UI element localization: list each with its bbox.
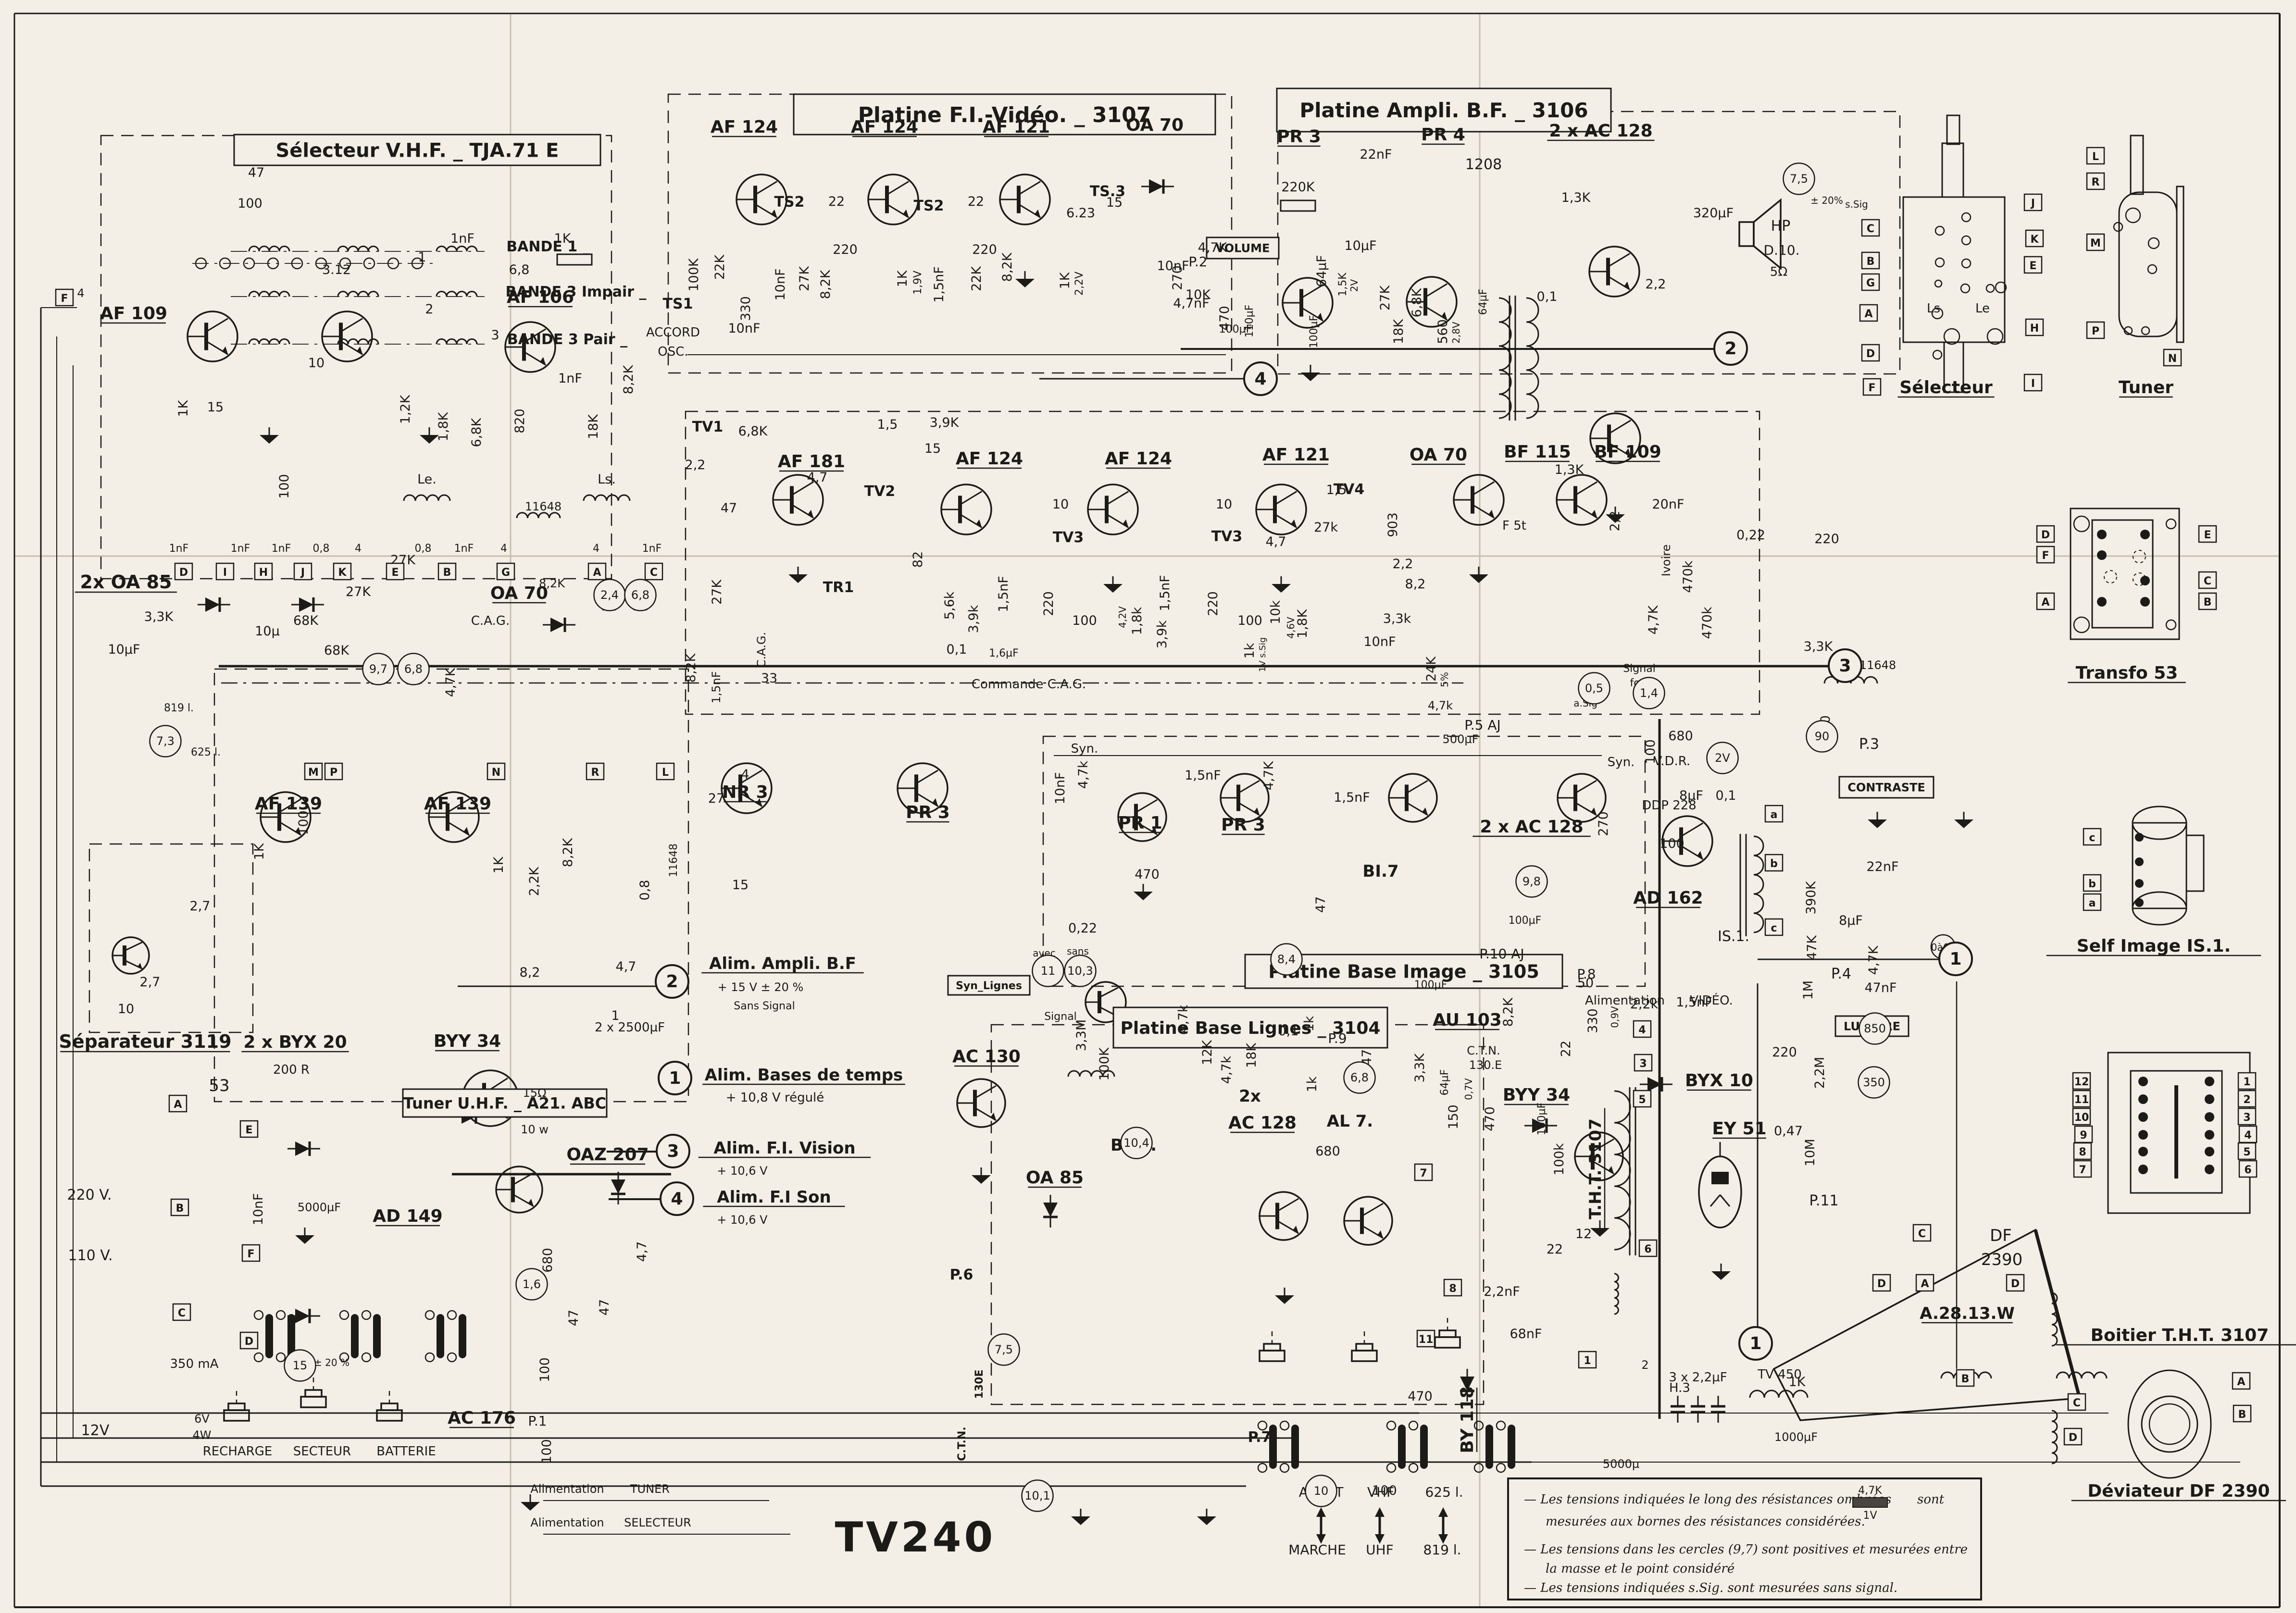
value-label: 15Ω [523,1086,547,1100]
value-label: SECTEUR [293,1444,351,1459]
value-label: 4,7k [1219,1055,1234,1084]
component-label: TV2 [864,483,896,500]
circled-voltage: 9,8 [1522,875,1541,888]
value-label: 47K [1805,935,1820,960]
figure-boitier-lug [2138,1077,2148,1086]
value-label: 10 [1216,497,1232,512]
circled-voltage: 11 [1041,964,1056,978]
value-label: 3,9k [1155,620,1170,648]
circled-voltage: 7,5 [1790,172,1808,186]
value-label: 1K [1058,272,1073,289]
value-label: 680 [1315,1144,1340,1159]
value-label: 625 l. [1425,1484,1463,1500]
value-label: 4,7K [1646,605,1661,634]
component-label: BI.7 [1362,862,1398,881]
value-label: 1,5nF [932,266,947,303]
value-label: 0,7V [1463,1078,1474,1100]
figure-self-lug [2135,833,2144,842]
value-label: 11648 [525,500,562,513]
value-label: 320µF [1693,206,1734,221]
value-label: 47 [566,1310,581,1326]
pin-label: H [2030,323,2039,335]
pin-label: P [330,767,337,779]
value-label: 0,47 [1774,1124,1803,1139]
pin-label: 6 [1644,1243,1651,1255]
value-label: 27k [1314,520,1338,535]
switch-blade [351,1314,359,1358]
value-label: 2,2k [1630,997,1659,1012]
value-label: 3,3K [1804,639,1834,654]
pin-label: 5 [2243,1146,2250,1158]
value-label: P.11 [1809,1192,1838,1209]
page-title: TV240 [835,1514,996,1562]
circled-voltage: 1,6 [523,1278,541,1291]
value-label: 819 l. [164,702,194,714]
pin-label: b [2088,878,2096,890]
value-label: 1M [1801,980,1816,1000]
value-label: 1K [895,270,910,287]
value-label: 0,22 [1736,528,1765,543]
value-label: 47nF [1865,980,1897,995]
component-label: 2 x BYX 20 [243,1032,347,1052]
component-label: AF 121 [983,117,1050,137]
value-label: 0,1 [1278,1024,1299,1039]
value-label: 220 V. [67,1187,112,1204]
pin-label: A [174,1099,182,1111]
value-label: 1,5nF [1158,575,1173,611]
value-label: 110 V. [68,1247,113,1264]
pin-label: 6 [2244,1164,2251,1176]
value-label: Syn. [1071,742,1098,756]
value-label: 1nF [642,543,662,555]
component-label: OAZ 207 [566,1145,649,1165]
value-label: 8,2K [1501,997,1516,1027]
component-label: BYY 34 [434,1031,501,1051]
component-label: PR 3 [1277,127,1321,147]
value-label: Sans Signal [734,1000,795,1012]
component-label: BF 115 [1504,442,1571,462]
pin-label: a [1771,809,1778,821]
value-label: 4,6V [1285,617,1297,639]
component-label: AF 124 [711,117,778,137]
value-label: TV 450 [1757,1367,1802,1382]
value-label: 22 [828,194,845,209]
value-label: 3,9K [930,415,960,430]
pin-label: 2 [2243,1094,2250,1106]
value-label: UHF [1366,1542,1394,1558]
value-label: ACCORD [646,325,700,340]
value-label: 1,5nF [996,576,1011,612]
component-label: PR 3 [906,803,950,822]
value-label: 0,8 [415,543,432,555]
note-resistor-symbol [1853,1498,1887,1507]
value-label: 10nF [1053,772,1068,805]
value-label: 470 [1483,1106,1497,1131]
value-label: 3,3K [144,609,174,624]
value-label: 6V [194,1412,210,1426]
value-label: 820 [512,409,527,434]
value-label: D.10. [1764,242,1800,258]
component-label: T.H.T. 3107 [1586,1118,1605,1219]
value-label: 1,8k [1130,607,1145,635]
value-label: RECHARGE [203,1444,273,1459]
value-label: 1,5 [877,417,898,432]
pin-label: D [2011,1278,2020,1290]
note-resistor-voltage: 1V [1863,1510,1877,1522]
figure-transfo-lug [2097,530,2107,539]
pin-label: E [391,567,399,579]
value-label: 100 [539,1439,554,1464]
component-label: Sélecteur [1899,378,1993,397]
pin-label: E [245,1124,252,1136]
value-label: 4,7K [1866,945,1881,975]
value-label: 33 [761,671,777,686]
component-label: BYX 10 [1685,1071,1753,1091]
pin-label: 8 [1449,1283,1456,1295]
value-label: 0,22 [1068,921,1097,936]
pin-label: a [2089,897,2096,909]
pin-label: 3 [1639,1058,1647,1070]
pin-label: B [1961,1373,1970,1385]
value-label: 11648 [668,844,680,877]
value-label: 200 R [273,1063,310,1077]
circled-voltage: 6,8 [631,588,649,602]
value-label: + 15 V ± 20 % [718,980,804,994]
component-label: AL 7. [1327,1112,1373,1131]
value-label: 2,2 [685,458,706,472]
value-label: 22 [1547,1242,1563,1257]
value-label: 1K [252,843,267,860]
value-label: 4 [500,543,507,555]
schematic-page: Sélecteur V.H.F. _ TJA.71 EPlatine F.I.-… [0,0,2296,1613]
component-label: PR 1 [1118,813,1162,833]
value-label: 2,2 [1393,557,1413,571]
pin-label: B [443,567,451,579]
value-label: OSC. [658,345,688,359]
value-label: V.D.R. [1654,754,1690,769]
value-label: 220 [1772,1045,1797,1060]
value-label: Alimentation [530,1482,604,1496]
pin-label: A [1921,1278,1929,1290]
pin-label: 4 [2244,1129,2251,1142]
value-label: C.A.G. [755,632,768,668]
value-label: 680 [540,1248,555,1273]
paper-background [0,0,2296,1613]
component-label: AF 139 [424,794,491,814]
value-label: 2,2 [1608,511,1622,532]
value-label: 2,7 [190,899,211,914]
value-label: 4,7 [616,959,636,974]
value-label: 270 [1170,265,1185,290]
value-label: 2 [425,302,433,317]
value-label: 4 [77,286,84,300]
figure-boitier-lug [2205,1112,2214,1122]
circled-voltage: 9,7 [369,662,387,676]
value-label: C.T.N. [1467,1044,1500,1057]
value-label: 2,2M [1812,1057,1827,1089]
value-label: Alimentation [530,1516,604,1529]
value-label: 130.E [1469,1058,1502,1072]
value-label: 64µF [1314,255,1329,287]
value-label: 4,7K [443,667,458,697]
value-label: 100µF [1219,323,1252,335]
pin-label: J [300,567,305,579]
value-label: 903 [1385,512,1400,537]
value-label: P.5 AJ [1464,717,1501,733]
component-label: AF 124 [1105,449,1172,469]
pin-label: E [2029,260,2036,272]
node-number: 1 [1749,1334,1761,1353]
value-label: 10M [1803,1139,1818,1166]
component-label: AC 176 [448,1408,516,1428]
value-label: 1 [418,250,426,265]
component-label: TV3 [1211,528,1243,545]
pin-label: A [2041,596,2049,608]
component-label: 2x [1239,1087,1261,1106]
value-label: 1208 [1465,156,1502,173]
figure-self-lug [2135,879,2144,888]
value-label: 27K [1378,285,1393,310]
pin-label: D [179,567,188,579]
pin-label: 1 [1584,1355,1591,1367]
figure-transfo-lug [2097,597,2107,607]
circled-voltage: 7,5 [995,1343,1013,1356]
value-label: 4,7 [635,1241,649,1262]
component-label: Transfo 53 [2076,663,2178,683]
value-label: DDP 228 [1642,798,1697,813]
value-label: 1,2K [398,394,413,424]
component-label: AC 128 [1228,1113,1297,1133]
value-label: Signal [1623,663,1656,675]
value-label: 4,7K [1198,240,1228,255]
component-label: AF 121 [1262,445,1330,465]
value-label: ± 20% [1810,195,1843,206]
component-label: Alim. F.I. Vision [713,1139,855,1158]
value-label: 47 [721,501,737,516]
value-label: 12V [81,1422,110,1439]
pin-label: J [2030,198,2035,210]
component-label: TS1 [663,296,693,312]
value-label: 1000µF [1774,1430,1818,1444]
switch-blade [1291,1425,1299,1469]
value-label: + 10,6 V [717,1213,768,1227]
value-label: 5,6k [942,591,957,620]
value-label: 1,5nF [710,671,723,703]
value-label: 1K [491,856,506,873]
value-label: 4,7k [1176,1005,1191,1033]
circled-voltage: 7,3 [156,734,175,748]
component-label: P.6 [950,1266,973,1283]
value-label: 11648 [1859,658,1896,672]
value-label: 2,2nF [1484,1284,1520,1299]
component-label: BYY 34 [1503,1085,1570,1105]
pin-label: N [492,767,500,779]
node-number: 4 [671,1189,683,1209]
value-label: 100 [237,196,262,211]
pin-label: A [1864,308,1872,320]
value-label: 1K [176,399,191,417]
value-label: 1,5nF [1334,790,1370,805]
component-label: TS2 [914,198,944,214]
value-label: 1nF [450,231,474,246]
value-label: 3,3k [1383,611,1411,626]
pin-label: F [247,1248,254,1260]
figure-boitier-lug [2205,1165,2214,1174]
pin-label: R [2092,176,2100,188]
value-label: 15 [732,878,749,893]
circled-voltage: 8,4 [1277,953,1296,966]
value-label: 220 [972,242,997,257]
value-label: 4 [741,767,749,782]
node-number: 1 [1949,949,1961,969]
value-label: 27K [710,579,724,605]
value-label: 1,5 [1326,483,1347,497]
pin-label: L [2092,151,2099,163]
value-label: + 10,8 V régulé [726,1091,824,1105]
value-label: 22nF [1867,859,1899,874]
value-label: 1nF [558,371,582,386]
pin-label: C [2204,575,2211,587]
value-label: 64µF [1439,1069,1451,1096]
title-label: Tuner U.H.F. _ A21. ABC [403,1094,606,1113]
value-label: Ls [1927,301,1940,316]
value-label: 0,1 [947,642,967,657]
value-label: 560 [1435,319,1450,344]
circled-voltage: 90 [1815,730,1830,743]
value-label: 625 l. [191,746,221,758]
circled-voltage: 10,3 [1067,964,1093,978]
value-label: 100µF [1414,979,1447,991]
value-label: 6.23 [1066,206,1095,221]
component-label: Tuner [2119,378,2173,397]
value-label: 27K [346,584,371,599]
circled-voltage: 1,4 [1640,686,1658,700]
pin-label: I [2031,378,2035,390]
value-label: 470k [1681,560,1696,593]
value-label: P.3 [1859,736,1879,753]
value-label: 15 [924,441,941,456]
value-label: 22 [1559,1041,1573,1057]
component-label: PR 3 [1221,815,1265,835]
component-label: 130E [973,1370,986,1399]
value-label: 10nF [728,321,761,336]
component-label: OA 70 [1126,115,1184,135]
figure-boitier-lug [2205,1077,2214,1086]
value-label: TUNER [630,1482,670,1496]
pin-label: 3 [2243,1112,2250,1124]
value-label: 18K [1391,319,1406,344]
value-label: HP [1771,218,1791,235]
value-label: Le [1975,301,1990,316]
pin-label: E [2204,529,2211,541]
circled-voltage: 0,5 [1585,682,1603,695]
pin-label: D [245,1336,253,1348]
pin-label: H [259,567,268,579]
component-label: Alim. Bases de temps [705,1066,903,1085]
value-label: Ls. [598,472,616,487]
component-label: Alim. F.I Son [717,1188,831,1207]
note-line: — Les tensions dans les cercles (9,7) so… [1524,1542,1968,1557]
value-label: Signal [1044,1011,1077,1023]
component-label: EY 51 [1712,1119,1766,1139]
value-label: IS.1. [1718,928,1749,945]
value-label: 4,7k [1076,760,1091,789]
pin-label: M [308,767,319,779]
value-label: 47 [1313,896,1328,913]
value-label: 47 [248,165,264,180]
component-label: OA 85 [1026,1168,1084,1188]
switch-blade [437,1314,444,1358]
title-label: Platine Ampli. B.F. _ 3106 [1299,99,1588,122]
value-label: 0,8 [313,543,330,555]
value-label: 1k [1305,1076,1320,1092]
pin-label: P [2092,325,2099,337]
value-label: P.9 [1328,1030,1347,1046]
value-label: 1,3K [1561,190,1591,205]
value-label: 100µF [1509,915,1542,927]
node-number: 3 [667,1142,679,1161]
switch-blade [373,1314,381,1358]
component-label: TS2 [774,194,805,211]
value-label: 680 [1668,729,1693,744]
note-line: — Les tensions indiquées s.Sig. sont mes… [1524,1581,1897,1595]
switch-blade [1398,1425,1406,1469]
value-label: MARCHE [1288,1542,1346,1558]
value-label: 10µF [108,642,140,657]
component-label: BY 118 [1458,1386,1477,1453]
value-label: 68K [324,643,349,658]
pin-label: K [2030,234,2039,246]
pin-label: L [662,767,669,779]
node-number: 4 [1254,369,1266,389]
value-label: 8,2K [684,653,699,682]
value-label: 27K [797,266,812,291]
value-label: 1k [1242,643,1257,658]
value-label: 1,6µF [989,647,1019,659]
value-label: 6,8 [509,262,530,277]
value-label: 2 x 2500µF [595,1020,665,1035]
value-label: 1K [554,231,572,246]
value-label: 270 [1596,811,1611,836]
pin-label: F [2042,550,2049,562]
pin-label: D [1877,1278,1886,1290]
pin-label: A [2237,1376,2245,1388]
value-label: 5000µ [1603,1457,1639,1471]
value-label: 220 [1814,532,1839,546]
pin-label: 9 [2080,1129,2087,1142]
value-label: Commande C.A.G. [972,677,1086,692]
pin-label: 7 [1420,1167,1427,1179]
value-label: 10K [1185,287,1211,302]
component-label: Séparateur 3119 [59,1031,231,1052]
value-label: 64µF [1477,289,1489,315]
value-label: 1,5nF [1185,768,1221,783]
value-label: 100K [686,258,701,292]
value-label: Le. [417,472,437,487]
value-label: 3.12 [322,262,351,277]
circled-voltage: 850 [1864,1022,1886,1035]
value-label: 10k [1268,600,1283,624]
note-line: sont [1917,1492,1945,1507]
value-label: 10nF [773,269,788,301]
pin-label: C [1867,223,1874,235]
pin-label: 7 [2079,1164,2086,1176]
value-label: 2,2 [1646,277,1666,292]
switch-blade [265,1314,273,1358]
node-number: 1 [669,1068,681,1088]
component-label: BANDE 1 _ [506,238,589,255]
value-label: 100 [537,1357,552,1382]
